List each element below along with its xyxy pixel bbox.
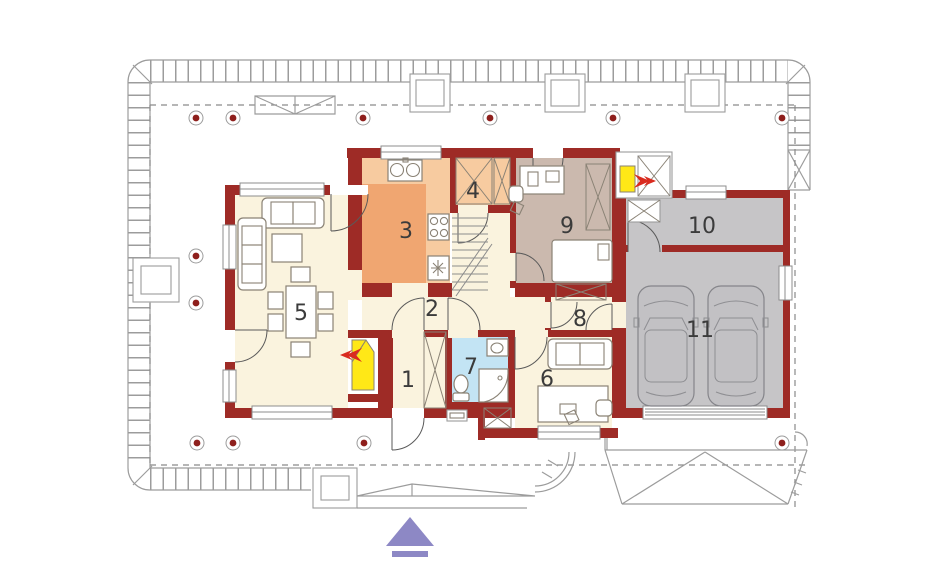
- garage-boiler-doorway-gap: [628, 245, 662, 252]
- bedroom9-doorway-gap: [510, 253, 516, 281]
- entrance-porch: [313, 452, 575, 508]
- living-side-door-gap: [225, 330, 235, 362]
- floor-plan-drawing: 1 2 3 4 5 6 7 8 9 10 11: [0, 0, 940, 587]
- room-label-6: 6: [540, 367, 554, 392]
- bathroom-doorway-gap: [448, 330, 478, 338]
- dining-chair: [268, 292, 283, 309]
- coffee-table: [272, 234, 302, 262]
- chimney: [133, 258, 179, 302]
- porch-rounded-roof-edge: [535, 452, 575, 492]
- room-label-4: 4: [466, 179, 480, 204]
- dining-chair: [268, 314, 283, 331]
- porch-roof-ticks: [542, 460, 558, 478]
- car-2: [704, 286, 768, 406]
- room1-doorway-gap: [392, 330, 424, 338]
- dormer-1-inner: [416, 80, 444, 106]
- hall8-garage-doorway-gap: [612, 302, 626, 328]
- roof-window-hatch: [255, 96, 335, 114]
- garage-driveway-canopy: [605, 415, 807, 504]
- room-label-3: 3: [399, 219, 413, 244]
- boiler: [620, 166, 635, 192]
- room-label-2: 2: [425, 297, 439, 322]
- desk: [520, 166, 564, 194]
- roof-right-gable-end: [788, 150, 810, 190]
- front-door-arc: [392, 418, 424, 450]
- room-label-1: 1: [401, 368, 415, 393]
- dining-chair: [318, 292, 333, 309]
- boiler-niche: [616, 152, 672, 198]
- boiler-room-chimney: [628, 200, 660, 222]
- kitchen-sink: [388, 160, 422, 181]
- dining-chair: [318, 314, 333, 331]
- car-1: [634, 286, 698, 406]
- kitchen-doorway-gap: [392, 283, 428, 297]
- desk-chair: [509, 186, 523, 202]
- room-label-7: 7: [464, 355, 478, 380]
- room-label-11: 11: [686, 318, 714, 343]
- dormer-3-inner: [691, 80, 719, 106]
- porch-canopy-hip: [357, 484, 535, 508]
- room6-doorway-gap: [515, 330, 548, 338]
- garage-door: [643, 406, 767, 419]
- bedroom9-terrace-door-gap: [533, 148, 563, 158]
- dining-chair: [291, 342, 310, 357]
- room-2-corridor-floor: [362, 297, 545, 330]
- front-door-gap: [392, 408, 424, 418]
- entrance-arrow-base: [392, 551, 428, 557]
- porch-column-inner: [321, 476, 349, 500]
- dining-chair: [291, 267, 310, 282]
- pantry-doorway-gap: [458, 205, 488, 213]
- desk-chair-room6: [596, 400, 612, 416]
- toilet-tank: [453, 393, 469, 401]
- room-label-10: 10: [688, 214, 716, 239]
- room-label-8: 8: [573, 307, 587, 332]
- floor-plan-canvas: 1 2 3 4 5 6 7 8 9 10 11: [0, 0, 940, 587]
- shower: [479, 369, 508, 402]
- hall8-doorway-gap: [545, 302, 551, 328]
- room-label-9: 9: [560, 214, 574, 239]
- entrance-arrow: [386, 517, 434, 557]
- living-hall-pass: [348, 270, 362, 300]
- bed: [552, 240, 612, 282]
- room-label-5: 5: [294, 301, 308, 326]
- living-terrace-door-gap: [330, 185, 368, 195]
- entrance-arrow-triangle: [386, 517, 434, 546]
- dormer-2-inner: [551, 80, 579, 106]
